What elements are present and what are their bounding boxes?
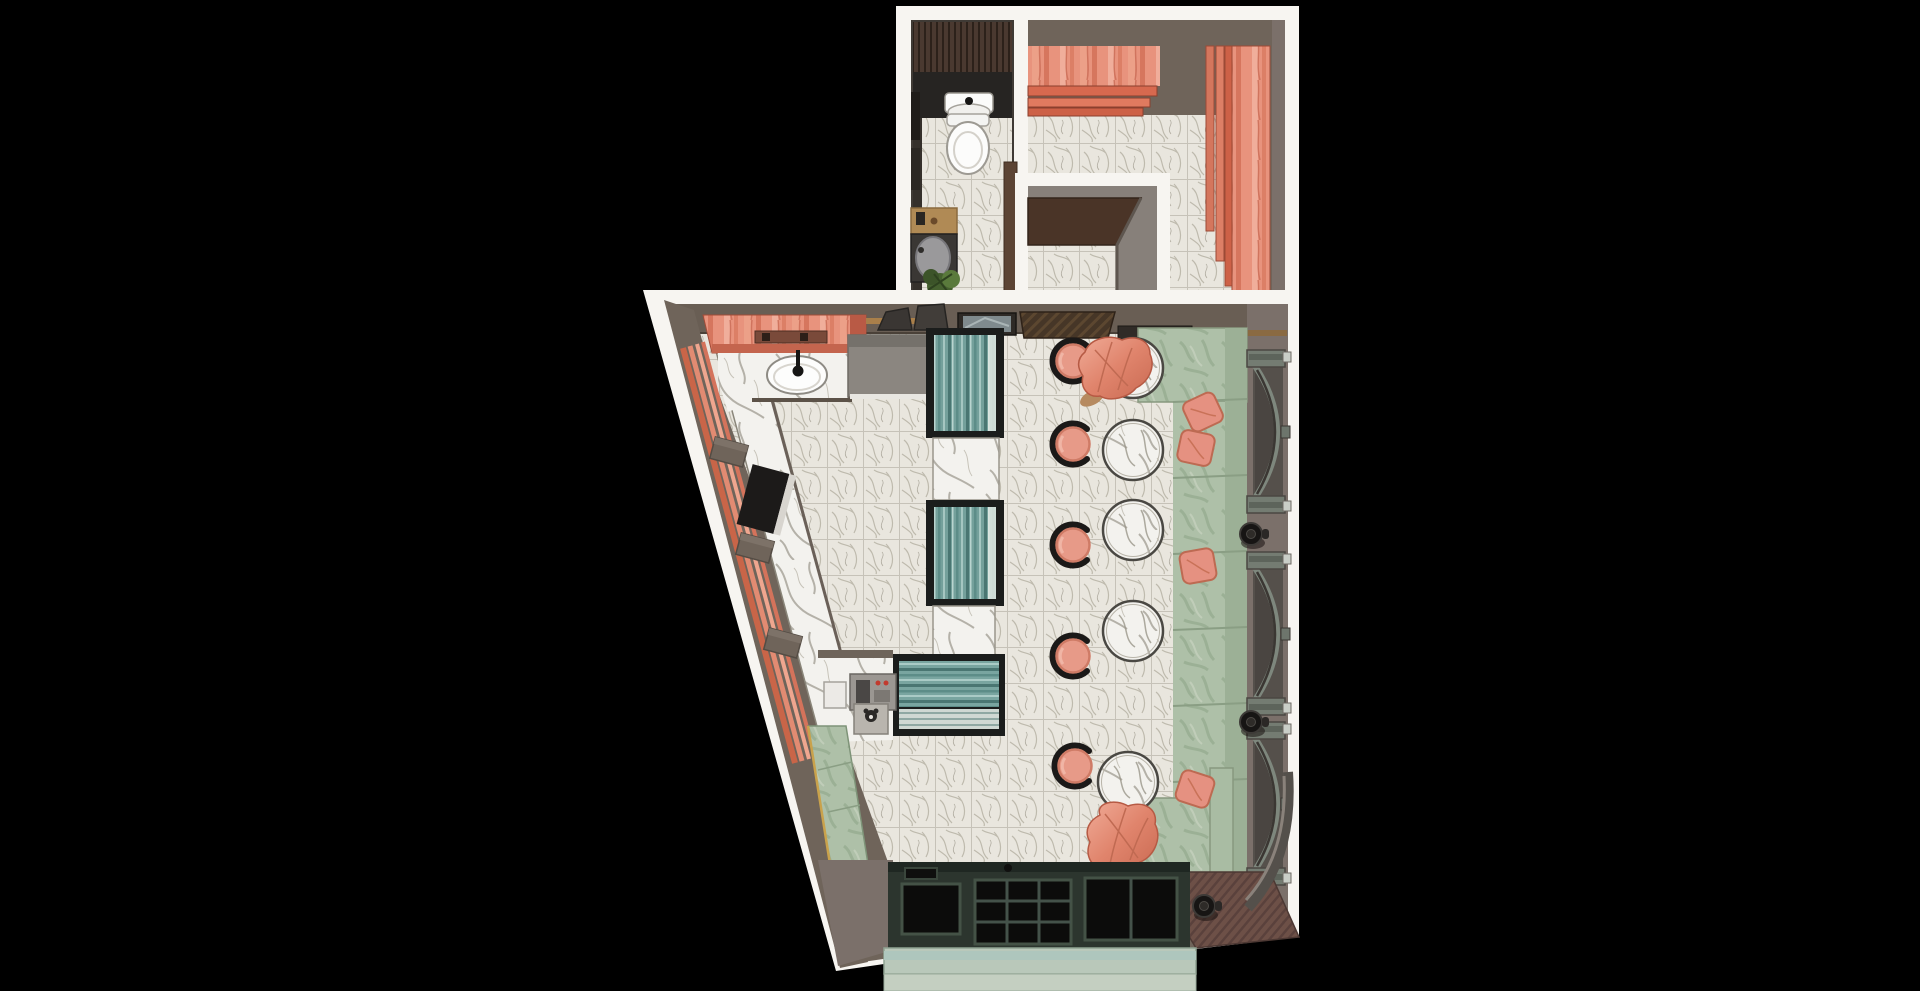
- marble-block-2: [933, 606, 995, 656]
- bathroom-door-panel-upper: [911, 92, 920, 140]
- vanity-faucet: [793, 366, 804, 377]
- bathroom-door-panel-lower: [911, 148, 920, 190]
- window-pane-center: [975, 880, 1071, 944]
- bathroom-slat-wall: [913, 22, 1012, 72]
- pink-stool: [1053, 424, 1090, 465]
- lounge-floor-upper: [1028, 115, 1232, 176]
- lounge-top-curtain: [1028, 46, 1160, 116]
- marble-block-1: [933, 438, 999, 500]
- cash-register: [854, 704, 888, 734]
- faucet-dot: [965, 97, 973, 105]
- tub-faucet: [918, 247, 924, 253]
- render-canvas: [0, 0, 1920, 991]
- pink-stool: [1053, 525, 1090, 566]
- window-latch: [1004, 864, 1012, 872]
- coral-pillow: [1176, 429, 1216, 467]
- coral-pillow: [1178, 547, 1217, 584]
- hat-right: [914, 304, 948, 330]
- marble-bar-table: [1103, 601, 1163, 661]
- window-lower-step: [884, 974, 1196, 991]
- lounge-right-wall: [1272, 20, 1285, 304]
- slatted-awning: [1020, 312, 1115, 338]
- bathroom-vanity: [911, 208, 957, 234]
- window-pane-right: [1085, 878, 1177, 940]
- room-bathroom: [911, 20, 1017, 302]
- pink-stool: [1053, 636, 1090, 677]
- coral-vanity: [703, 315, 866, 412]
- window-pane-left: [902, 884, 960, 934]
- toilet: [947, 114, 989, 174]
- small-appliance: [824, 682, 846, 708]
- top-section: [896, 6, 1299, 313]
- marble-bar-table: [1103, 500, 1163, 560]
- floor-plan-svg: [0, 0, 1920, 991]
- marble-bar-table: [1103, 420, 1163, 480]
- pink-stool: [1055, 746, 1092, 787]
